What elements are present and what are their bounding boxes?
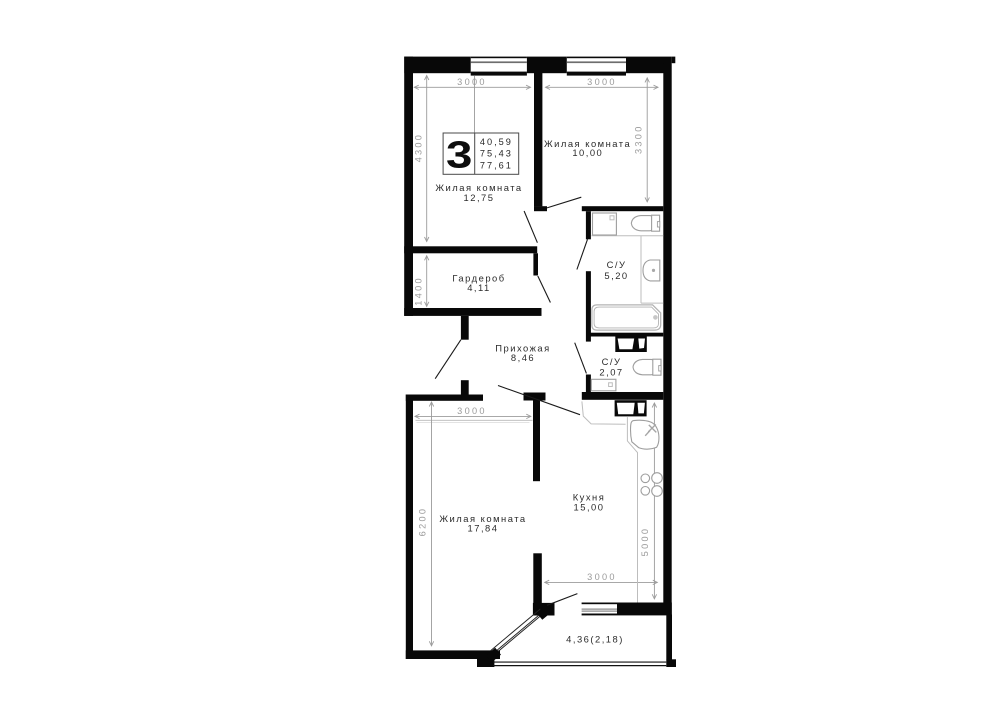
svg-text:3000: 3000 — [587, 77, 617, 87]
svg-text:75,43: 75,43 — [480, 149, 513, 159]
svg-text:40,59: 40,59 — [480, 137, 513, 147]
svg-text:5,20: 5,20 — [604, 270, 628, 281]
svg-text:С/У: С/У — [607, 259, 627, 270]
svg-text:2,07: 2,07 — [599, 366, 623, 377]
svg-text:3000: 3000 — [457, 406, 487, 416]
svg-text:4,36(2,18): 4,36(2,18) — [566, 634, 624, 645]
svg-text:3: 3 — [446, 134, 472, 176]
svg-text:5000: 5000 — [640, 527, 650, 557]
svg-text:8,46: 8,46 — [511, 352, 535, 363]
svg-text:10,00: 10,00 — [572, 147, 603, 158]
svg-text:4300: 4300 — [413, 133, 423, 163]
svg-text:С/У: С/У — [602, 356, 622, 367]
svg-text:17,84: 17,84 — [468, 523, 499, 534]
svg-text:1400: 1400 — [413, 276, 423, 306]
svg-text:15,00: 15,00 — [574, 501, 605, 512]
svg-text:12,75: 12,75 — [464, 192, 495, 203]
svg-text:4,11: 4,11 — [467, 282, 491, 293]
svg-text:3000: 3000 — [457, 77, 487, 87]
svg-text:77,61: 77,61 — [480, 160, 513, 170]
svg-text:3300: 3300 — [633, 124, 643, 154]
svg-text:6200: 6200 — [417, 507, 427, 537]
svg-text:3000: 3000 — [587, 572, 617, 582]
